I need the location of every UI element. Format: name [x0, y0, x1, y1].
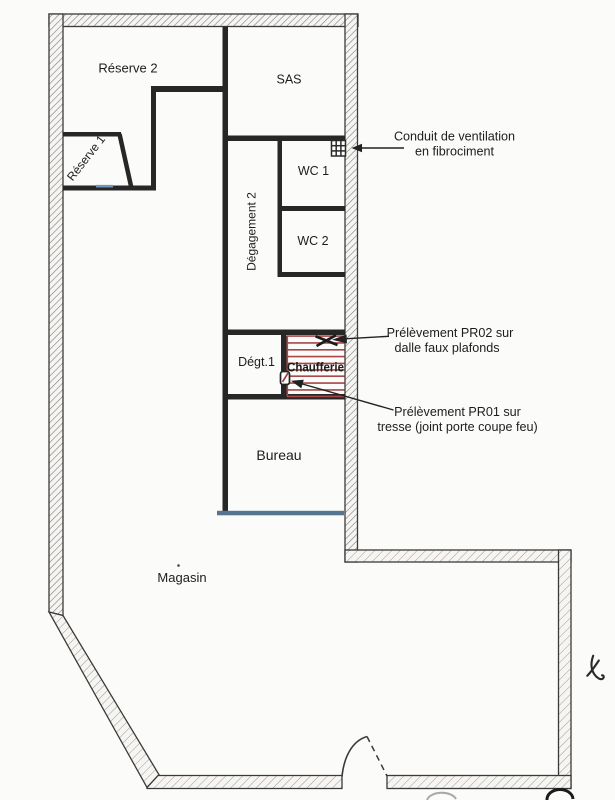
svg-text:Prélèvement PR01 sur: Prélèvement PR01 sur	[394, 405, 521, 419]
svg-text:Bureau: Bureau	[256, 447, 301, 463]
svg-text:tresse (joint porte coupe feu): tresse (joint porte coupe feu)	[377, 420, 537, 434]
svg-text:WC 1: WC 1	[298, 164, 329, 178]
svg-text:Dégt.1: Dégt.1	[238, 355, 275, 369]
svg-text:Dégagement 2: Dégagement 2	[245, 192, 259, 271]
svg-text:Conduit de ventilation: Conduit de ventilation	[394, 130, 515, 144]
svg-text:Prélèvement PR02 sur: Prélèvement PR02 sur	[387, 326, 514, 340]
svg-text:Réserve 2: Réserve 2	[98, 61, 157, 76]
svg-text:dalle faux plafonds: dalle faux plafonds	[394, 341, 499, 355]
svg-text:WC 2: WC 2	[297, 234, 328, 248]
svg-text:SAS: SAS	[276, 73, 301, 87]
svg-text:Magasin: Magasin	[157, 570, 206, 585]
svg-text:en fibrociment: en fibrociment	[415, 145, 495, 159]
svg-text:Chaufferie: Chaufferie	[287, 360, 344, 375]
